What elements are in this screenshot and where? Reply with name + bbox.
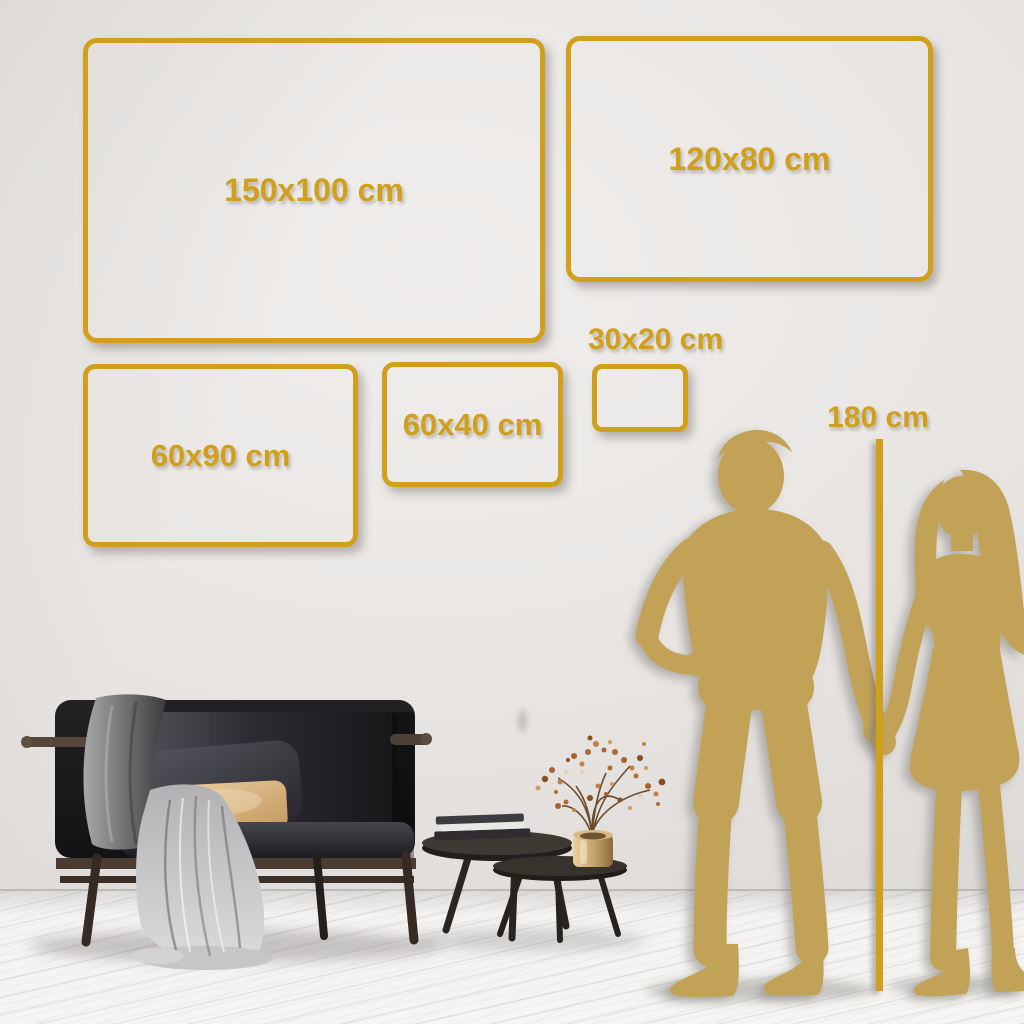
size-label-60x40: 60x40 cm (403, 407, 543, 443)
books-stack (434, 813, 531, 840)
couple-silhouette (615, 425, 1024, 1010)
size-frame-60x90: 60x90 cm (83, 364, 358, 547)
living-room-furniture (0, 690, 700, 1024)
size-frame-120x80: 120x80 cm (566, 36, 933, 282)
woman-silhouette (872, 470, 1024, 997)
height-marker-label: 180 cm (798, 401, 958, 435)
size-label-120x80: 120x80 cm (669, 141, 831, 178)
size-label-60x90: 60x90 cm (151, 438, 291, 474)
size-label-30x20: 30x20 cm (588, 323, 723, 357)
table-floor-shadow (415, 929, 645, 951)
size-label-150x100: 150x100 cm (224, 172, 404, 209)
size-frame-60x40: 60x40 cm (382, 362, 563, 487)
height-marker-line (876, 439, 883, 991)
sofa-with-blanket-and-pillows (21, 694, 432, 970)
size-frame-150x100: 150x100 cm (83, 38, 545, 343)
size-guide-poster: 150x100 cm 120x80 cm 60x90 cm 60x40 cm 3… (0, 0, 1024, 1024)
size-frame-30x20 (592, 364, 688, 432)
man-silhouette (647, 430, 889, 997)
